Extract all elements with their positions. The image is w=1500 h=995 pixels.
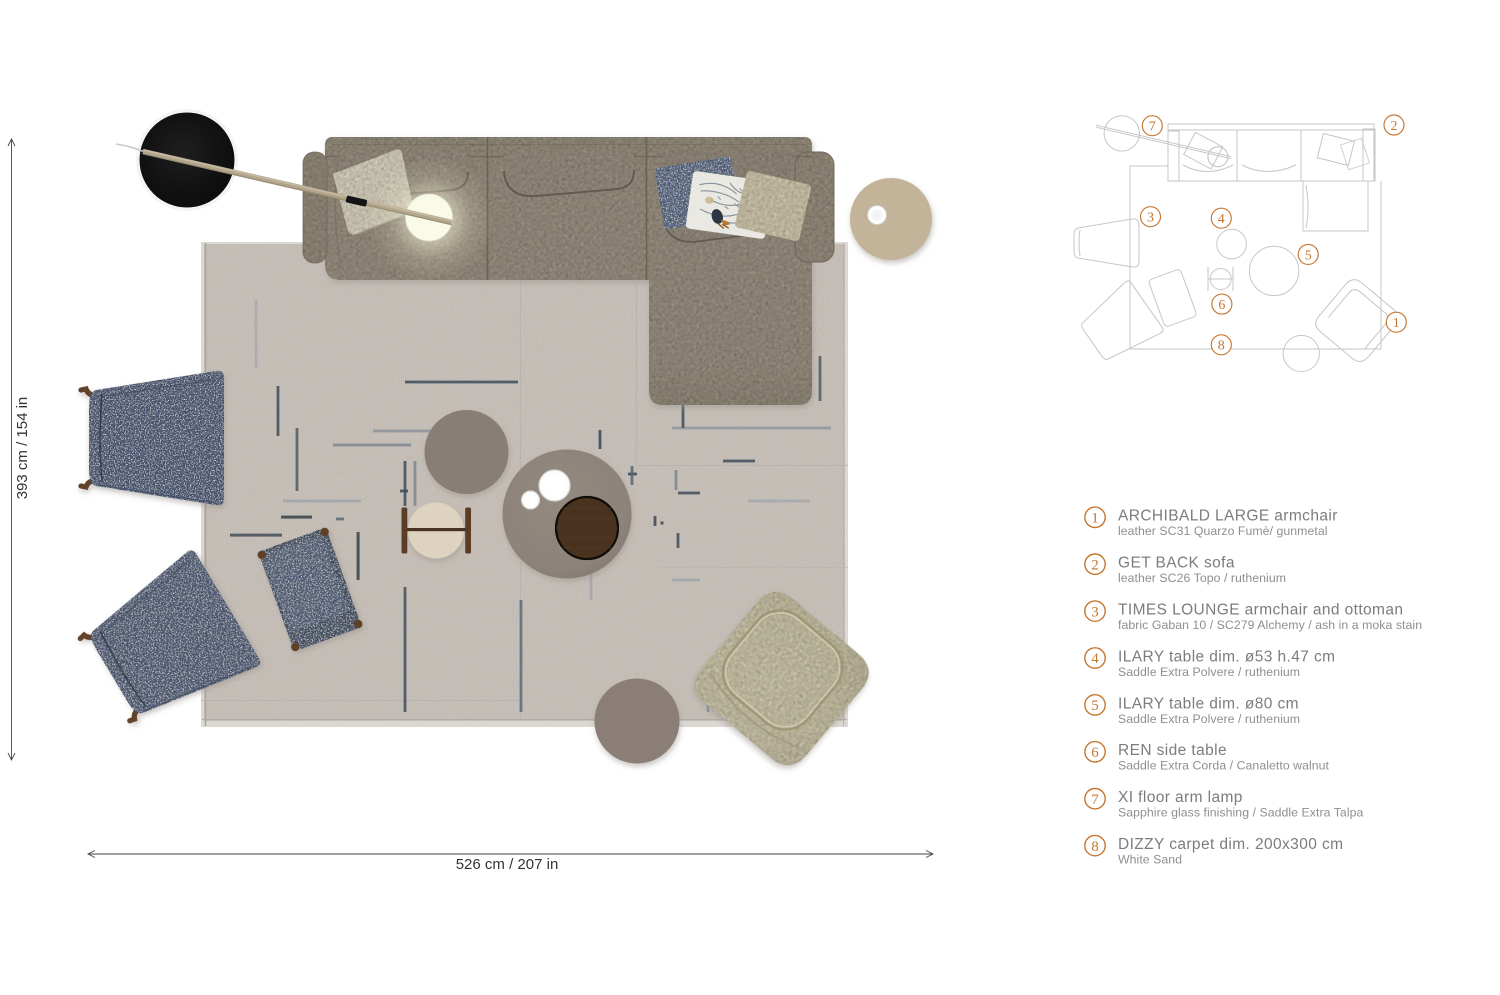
svg-text:1: 1 xyxy=(1393,316,1400,331)
svg-text:1: 1 xyxy=(1091,511,1099,527)
svg-text:TIMES LOUNGE armchair and otto: TIMES LOUNGE armchair and ottoman xyxy=(1118,602,1403,619)
svg-text:Saddle Extra Polvere / rutheni: Saddle Extra Polvere / ruthenium xyxy=(1118,712,1300,726)
svg-text:6: 6 xyxy=(1218,298,1225,313)
svg-text:526 cm / 207 in: 526 cm / 207 in xyxy=(456,856,559,873)
svg-text:leather SC26 Topo / ruthenium: leather SC26 Topo / ruthenium xyxy=(1118,571,1286,585)
svg-text:XI floor arm lamp: XI floor arm lamp xyxy=(1118,789,1243,806)
svg-text:8: 8 xyxy=(1091,839,1099,855)
svg-text:2: 2 xyxy=(1091,557,1099,573)
svg-text:393 cm / 154 in: 393 cm / 154 in xyxy=(14,397,31,500)
svg-text:2: 2 xyxy=(1391,119,1398,134)
svg-text:ARCHIBALD LARGE armchair: ARCHIBALD LARGE armchair xyxy=(1118,508,1338,525)
svg-text:4: 4 xyxy=(1218,212,1225,227)
svg-text:7: 7 xyxy=(1149,120,1156,135)
svg-text:ILARY table dim. ø80 cm: ILARY table dim. ø80 cm xyxy=(1118,695,1299,712)
svg-text:3: 3 xyxy=(1147,211,1154,226)
svg-text:DIZZY carpet dim. 200x300 cm: DIZZY carpet dim. 200x300 cm xyxy=(1118,836,1343,853)
svg-text:fabric Gaban 10 / SC279 Alchem: fabric Gaban 10 / SC279 Alchemy / ash in… xyxy=(1118,618,1422,632)
svg-text:ILARY table dim. ø53 h.47 cm: ILARY table dim. ø53 h.47 cm xyxy=(1118,648,1335,665)
svg-text:Sapphire glass finishing / Sad: Sapphire glass finishing / Saddle Extra … xyxy=(1118,806,1363,820)
svg-text:White Sand: White Sand xyxy=(1118,853,1182,867)
svg-text:3: 3 xyxy=(1091,604,1099,620)
svg-text:GET BACK sofa: GET BACK sofa xyxy=(1118,555,1235,572)
svg-text:Saddle Extra Polvere / rutheni: Saddle Extra Polvere / ruthenium xyxy=(1118,665,1300,679)
svg-text:leather SC31 Quarzo Fumè/ gunm: leather SC31 Quarzo Fumè/ gunmetal xyxy=(1118,524,1328,538)
svg-text:6: 6 xyxy=(1091,745,1099,761)
svg-text:8: 8 xyxy=(1218,339,1225,354)
svg-text:4: 4 xyxy=(1091,651,1099,667)
svg-text:5: 5 xyxy=(1091,698,1099,714)
svg-text:REN side table: REN side table xyxy=(1118,742,1227,759)
svg-text:Saddle Extra Corda / Canaletto: Saddle Extra Corda / Canaletto walnut xyxy=(1118,759,1330,773)
svg-text:7: 7 xyxy=(1091,792,1099,808)
svg-text:5: 5 xyxy=(1305,248,1312,263)
